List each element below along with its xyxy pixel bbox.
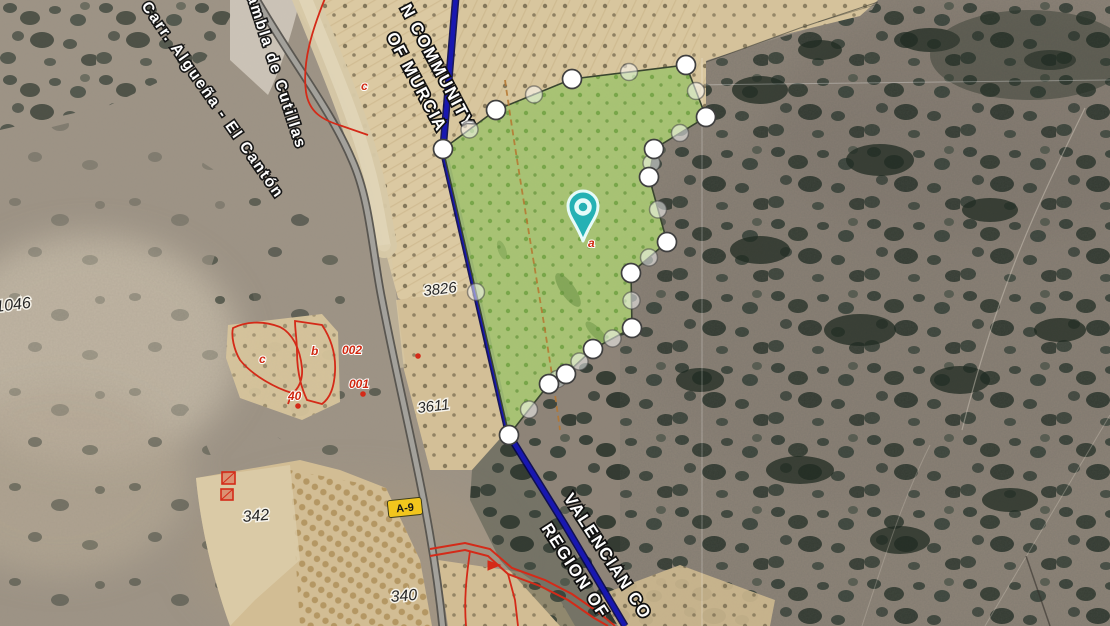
cadastral-red-label: b — [311, 344, 318, 358]
road-badge-text: A-9 — [396, 502, 415, 516]
parcel-midpoint-handle[interactable] — [623, 292, 640, 309]
parcel-midpoint-handle[interactable] — [461, 121, 478, 138]
parcel-midpoint-handle[interactable] — [521, 401, 538, 418]
parcel-midpoint-handle[interactable] — [672, 125, 689, 142]
parcel-midpoint-handle[interactable] — [526, 86, 543, 103]
parcel-midpoint-handle[interactable] — [688, 83, 705, 100]
cadastral-red-label: c — [361, 79, 368, 93]
parcel-midpoint-handle[interactable] — [468, 284, 485, 301]
cadastral-red-label: 40 — [287, 389, 302, 403]
parcel-midpoint-handle[interactable] — [650, 201, 667, 218]
cadastral-red-dot — [360, 391, 366, 397]
parcel-vertex-handle[interactable] — [500, 426, 519, 445]
parcel-vertex-handle[interactable] — [584, 340, 603, 359]
parcel-vertex-handle[interactable] — [640, 168, 659, 187]
road-badge: A-9 — [387, 497, 423, 517]
cadastral-red-label: a — [588, 236, 595, 250]
parcel-midpoint-handle[interactable] — [621, 64, 638, 81]
parcel-midpoint-handle[interactable] — [604, 330, 621, 347]
map-canvas[interactable]: Carr. Algueña - El Cantón Rambla de Cuti… — [0, 0, 1110, 626]
parcel-vertex-handle[interactable] — [677, 56, 696, 75]
cadastral-red-label: 002 — [342, 343, 362, 357]
parcel-vertex-handle[interactable] — [434, 140, 453, 159]
cadastral-red-label: c — [259, 352, 266, 366]
parcel-vertex-handle[interactable] — [540, 375, 559, 394]
cadastral-red-label: 001 — [349, 377, 369, 391]
parcel-midpoint-handle[interactable] — [641, 249, 658, 266]
parcel-vertex-handle[interactable] — [697, 108, 716, 127]
cadastral-number-label: 342 — [242, 507, 270, 526]
parcel-vertex-handle[interactable] — [557, 365, 576, 384]
satellite-map-viewport[interactable]: Carr. Algueña - El Cantón Rambla de Cuti… — [0, 0, 1110, 626]
parcel-vertex-handle[interactable] — [487, 101, 506, 120]
cadastral-number-label: 340 — [390, 587, 418, 606]
parcel-vertex-handle[interactable] — [623, 319, 642, 338]
parcel-vertex-handle[interactable] — [563, 70, 582, 89]
parcel-vertex-handle[interactable] — [645, 140, 664, 159]
parcel-vertex-handle[interactable] — [658, 233, 677, 252]
cadastral-red-dot — [415, 353, 421, 359]
cadastral-red-dot — [295, 403, 301, 409]
parcel-vertex-handle[interactable] — [622, 264, 641, 283]
